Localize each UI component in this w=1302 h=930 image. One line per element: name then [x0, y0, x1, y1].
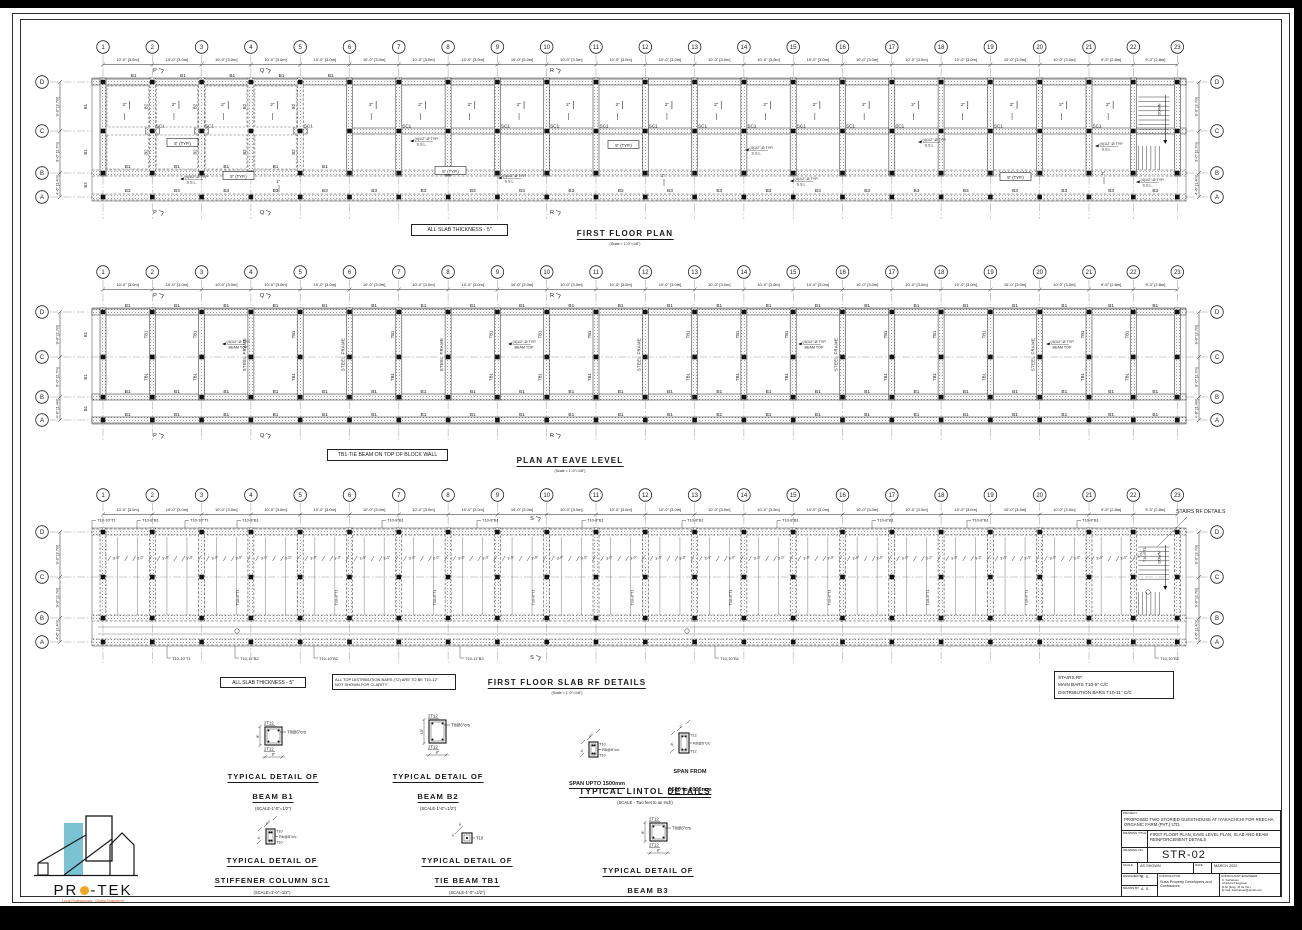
svg-text:TB1: TB1 [193, 372, 198, 380]
svg-text:B3: B3 [1152, 188, 1158, 194]
svg-text:Q: Q [260, 210, 265, 216]
svg-text:TB1: TB1 [1124, 330, 1129, 338]
svg-text:R: R [550, 210, 554, 216]
svg-text:10'-0" [3.0m]: 10'-0" [3.0m] [462, 282, 484, 287]
svg-text:23: 23 [1174, 270, 1181, 276]
svg-text:TB1: TB1 [981, 372, 986, 380]
svg-text:10'-0" [3.0m]: 10'-0" [3.0m] [314, 507, 336, 512]
svg-text:B3: B3 [618, 188, 624, 194]
titleblock-number-row: DRAWING NO. STR-02 [1122, 848, 1280, 863]
svg-text:6": 6" [580, 748, 586, 754]
svg-text:4'-6" [1.4m]: 4'-6" [1.4m] [55, 175, 60, 195]
svg-text:D: D [40, 310, 45, 316]
svg-text:T10-8"T1: T10-8"T1 [827, 589, 832, 605]
logo-wordmark: PR -TEK [34, 882, 152, 899]
plan-first-floor: 123456789101112131415161718192021222310'… [36, 41, 1224, 219]
svg-text:B3: B3 [371, 188, 377, 194]
svg-text:T12: T12 [690, 733, 697, 738]
svg-text:TB1: TB1 [488, 372, 493, 380]
logo-house [110, 833, 134, 875]
svg-text:10'-0" [3.0m]: 10'-0" [3.0m] [1053, 57, 1075, 62]
engineer-email: E-mail: ksutharsan@gmail.com [1220, 889, 1280, 893]
svg-text:9'-5" [2.8m]: 9'-5" [2.8m] [1101, 282, 1121, 287]
svg-text:9": 9" [670, 741, 676, 747]
svg-text:3'-0": 3'-0" [260, 555, 268, 561]
svg-text:B1: B1 [470, 389, 476, 395]
drawing-title-label: DRAWING TITLE [1122, 831, 1148, 847]
drawn-by-value: A. S. [1139, 886, 1151, 897]
svg-text:T10-8"B1: T10-8"B1 [587, 518, 605, 523]
svg-text:T10-11"B2: T10-11"B2 [465, 656, 484, 661]
detail-beam-b1-title: TYPICAL DETAIL OF BEAM B1 (SCALE-1'-0"=1… [228, 766, 319, 811]
svg-text:(4)1/2"-Ø TYP.: (4)1/2"-Ø TYP. [185, 175, 209, 179]
svg-text:S.S.L.: S.S.L. [797, 183, 807, 187]
svg-text:10'-0" [3.0m]: 10'-0" [3.0m] [609, 507, 631, 512]
svg-text:10'-0" [3.0m]: 10'-0" [3.0m] [955, 507, 977, 512]
plan-eave-level: 123456789101112131415161718192021222310'… [36, 266, 1224, 442]
svg-text:8": 8" [641, 830, 645, 834]
svg-text:13: 13 [691, 270, 698, 276]
svg-text:TB1: TB1 [1124, 372, 1129, 380]
svg-text:(4)1/2"-Ø TYP.: (4)1/2"-Ø TYP. [1051, 340, 1075, 344]
svg-text:T10-8"T1: T10-8"T1 [1024, 589, 1029, 605]
plan1-scale: (Scale = 1'-0"=1/8") [609, 242, 640, 246]
svg-text:B2: B2 [193, 149, 198, 155]
svg-text:B1: B1 [83, 149, 88, 155]
lintol-title: TYPICAL LINTOL DETAILS [579, 786, 711, 798]
svg-text:T10-8"B1: T10-8"B1 [972, 518, 990, 523]
svg-text:B1: B1 [174, 389, 180, 395]
svg-text:B1: B1 [519, 303, 525, 309]
svg-text:2": 2" [911, 102, 916, 107]
svg-text:TB1: TB1 [390, 372, 395, 380]
svg-text:10'-0" [3.0m]: 10'-0" [3.0m] [757, 282, 779, 287]
svg-text:22: 22 [1130, 270, 1137, 276]
svg-text:B1: B1 [716, 412, 722, 418]
svg-text:5" (TYP.): 5" (TYP.) [442, 169, 459, 174]
svg-text:9'-0" [2.7m]: 9'-0" [2.7m] [1194, 588, 1199, 608]
svg-text:C: C [1215, 355, 1220, 361]
svg-text:10'-0" [3.0m]: 10'-0" [3.0m] [1004, 507, 1026, 512]
svg-text:9'-5" [2.8m]: 9'-5" [2.8m] [1101, 57, 1121, 62]
svg-text:9'-0" [2.7m]: 9'-0" [2.7m] [55, 97, 60, 117]
svg-text:10'-0" [3.0m]: 10'-0" [3.0m] [708, 57, 730, 62]
svg-text:8": 8" [436, 751, 440, 755]
svg-text:2T12: 2T12 [428, 714, 438, 719]
svg-text:10'-0" [3.0m]: 10'-0" [3.0m] [215, 282, 237, 287]
svg-text:2T12: 2T12 [649, 843, 659, 848]
note-tie-beam: TB1-TIE BEAM ON TOP OF BLOCK WALL [327, 449, 448, 461]
svg-text:TB1: TB1 [193, 330, 198, 338]
svg-text:TB1: TB1 [291, 330, 296, 338]
svg-text:9'-0" [2.7m]: 9'-0" [2.7m] [55, 325, 60, 345]
svg-text:B: B [1215, 395, 1219, 401]
svg-text:BEAM TOP: BEAM TOP [229, 346, 248, 350]
svg-text:2": 2" [517, 102, 522, 107]
svg-text:10'-0" [3.0m]: 10'-0" [3.0m] [856, 57, 878, 62]
svg-text:R: R [550, 433, 554, 439]
svg-text:16: 16 [839, 493, 846, 499]
svg-text:SC1: SC1 [402, 124, 411, 129]
svg-text:SC1: SC1 [501, 124, 510, 129]
drawing-title-value: FIRST FLOOR PLAN, EAVE LEVEL PLAN, SLAB … [1148, 831, 1280, 847]
svg-text:17: 17 [888, 493, 895, 499]
svg-text:2": 2" [221, 102, 226, 107]
svg-text:B1: B1 [328, 73, 334, 79]
svg-text:S.S.L.: S.S.L. [752, 152, 762, 156]
svg-text:SC1: SC1 [895, 124, 904, 129]
svg-text:TB1: TB1 [932, 372, 937, 380]
svg-text:B1: B1 [421, 303, 427, 309]
plan2-title: PLAN AT EAVE LEVEL [517, 456, 624, 467]
svg-text:T12: T12 [690, 749, 697, 754]
svg-text:T10-8"B1: T10-8"B1 [877, 518, 895, 523]
svg-text:10'-0" [3.0m]: 10'-0" [3.0m] [856, 282, 878, 287]
svg-text:1": 1" [1101, 171, 1105, 176]
svg-text:TB1: TB1 [932, 330, 937, 338]
designed-by-label: DESIGNED BY [1122, 874, 1139, 885]
svg-text:10'-0" [3.0m]: 10'-0" [3.0m] [264, 507, 286, 512]
svg-text:10'-0" [3.0m]: 10'-0" [3.0m] [659, 507, 681, 512]
svg-text:TB1: TB1 [784, 372, 789, 380]
svg-text:10'-0" [3.0m]: 10'-0" [3.0m] [905, 57, 927, 62]
svg-text:3'-0": 3'-0" [310, 555, 318, 561]
detail-b2-line2: BEAM B2 [417, 792, 458, 803]
stairs-rf-line1: STAIRS RF: [1058, 674, 1170, 681]
drawing-no-value: STR-02 [1148, 848, 1206, 862]
svg-text:3'-0": 3'-0" [951, 555, 959, 561]
svg-text:SC1: SC1 [698, 124, 707, 129]
svg-text:3'-0": 3'-0" [211, 555, 219, 561]
detail-b1-line1: TYPICAL DETAIL OF [228, 772, 319, 783]
svg-text:B1: B1 [618, 412, 624, 418]
svg-text:T10: T10 [276, 829, 284, 834]
detail-beam-b3-title: TYPICAL DETAIL OF BEAM B3 [603, 860, 694, 898]
svg-text:D: D [1215, 530, 1220, 536]
lintol-right-span1: SPAN FROM [673, 769, 706, 775]
svg-text:3'-0": 3'-0" [852, 555, 860, 561]
svg-text:T10-8"T1: T10-8"T1 [334, 589, 339, 605]
logo-small-block [38, 863, 48, 875]
svg-text:B3: B3 [83, 182, 88, 188]
svg-text:T10-8"B1: T10-8"B1 [242, 518, 260, 523]
svg-text:2": 2" [566, 102, 571, 107]
svg-text:B1: B1 [83, 331, 88, 337]
svg-text:R6@5"c/c: R6@5"c/c [279, 834, 296, 839]
svg-text:10'-0" [3.0m]: 10'-0" [3.0m] [1004, 57, 1026, 62]
svg-text:T10-10"T1: T10-10"T1 [97, 518, 117, 523]
detail-sc1-title: TYPICAL DETAIL OF STIFFENER COLUMN SC1 (… [215, 850, 330, 895]
svg-text:T10-8"T1: T10-8"T1 [925, 589, 930, 605]
svg-text:B1: B1 [322, 164, 328, 170]
svg-text:2": 2" [270, 102, 275, 107]
svg-text:T10-8"T1: T10-8"T1 [235, 589, 240, 605]
svg-text:T10-8"B1: T10-8"B1 [387, 518, 405, 523]
titleblock-scale-row: SCALE AS SHOWN DATE MARCH 2022 [1122, 863, 1280, 874]
svg-text:STEEL FRAME: STEEL FRAME [341, 338, 346, 371]
svg-text:19: 19 [987, 45, 994, 51]
svg-text:18: 18 [938, 45, 945, 51]
svg-text:B3: B3 [174, 188, 180, 194]
svg-text:B1: B1 [667, 303, 673, 309]
svg-text:15: 15 [790, 270, 797, 276]
svg-text:TB1: TB1 [488, 330, 493, 338]
svg-text:B3: B3 [864, 188, 870, 194]
svg-text:(4)1/2"-Ø TYP.: (4)1/2"-Ø TYP. [415, 137, 439, 141]
svg-text:STEEL FRAME: STEEL FRAME [1031, 338, 1036, 371]
svg-text:10'-0" [3.0m]: 10'-0" [3.0m] [412, 57, 434, 62]
protek-logo-graphic [34, 811, 152, 877]
svg-text:12: 12 [642, 270, 649, 276]
svg-text:3'-0": 3'-0" [408, 555, 416, 561]
plan3-scale: (Scale = 1'-0"=1/8") [551, 691, 582, 695]
svg-text:23: 23 [1174, 45, 1181, 51]
svg-text:10'-0" [3.0m]: 10'-0" [3.0m] [215, 507, 237, 512]
svg-text:B1: B1 [223, 389, 229, 395]
svg-text:B1: B1 [716, 389, 722, 395]
svg-text:2": 2" [961, 102, 966, 107]
svg-text:10'-0" [3.0m]: 10'-0" [3.0m] [511, 282, 533, 287]
svg-text:D: D [1215, 310, 1220, 316]
svg-text:B: B [40, 616, 44, 622]
svg-text:TB1: TB1 [883, 330, 888, 338]
svg-text:B1: B1 [864, 389, 870, 395]
svg-text:B3: B3 [1108, 188, 1114, 194]
svg-text:B3: B3 [815, 188, 821, 194]
note-distribution-bars-line2: NOT SHOWN FOR CLARITY [335, 682, 453, 687]
svg-text:TB1: TB1 [143, 372, 148, 380]
svg-text:3'-0": 3'-0" [1049, 555, 1057, 561]
svg-text:9'-0" [2.7m]: 9'-0" [2.7m] [55, 545, 60, 565]
title-block: PROJECT: PROPOSED TWO STORIED GUESTHOUSE… [1121, 810, 1281, 897]
svg-text:B3: B3 [914, 188, 920, 194]
svg-text:B1: B1 [864, 412, 870, 418]
svg-text:2T12: 2T12 [264, 721, 274, 726]
svg-text:B1: B1 [279, 73, 285, 79]
svg-text:20: 20 [1036, 270, 1043, 276]
svg-text:2": 2" [122, 102, 127, 107]
svg-text:TB1: TB1 [1080, 372, 1085, 380]
svg-text:TB1: TB1 [686, 330, 691, 338]
svg-text:18: 18 [938, 493, 945, 499]
svg-text:9'-0" [2.7m]: 9'-0" [2.7m] [1194, 97, 1199, 117]
svg-text:1": 1" [661, 173, 665, 178]
svg-text:SC1: SC1 [994, 124, 1003, 129]
svg-text:10'-0" [3.0m]: 10'-0" [3.0m] [659, 282, 681, 287]
svg-text:T10: T10 [476, 836, 484, 841]
svg-text:4½": 4½" [588, 731, 596, 739]
svg-text:R6@5"c/c: R6@5"c/c [693, 740, 710, 745]
svg-text:B3: B3 [568, 188, 574, 194]
svg-text:TB1: TB1 [686, 372, 691, 380]
svg-text:10'-0" [3.0m]: 10'-0" [3.0m] [560, 282, 582, 287]
svg-text:9'-5" [2.8m]: 9'-5" [2.8m] [1101, 507, 1121, 512]
svg-text:10'-0" [3.0m]: 10'-0" [3.0m] [314, 57, 336, 62]
svg-text:10'-0" [3.0m]: 10'-0" [3.0m] [215, 57, 237, 62]
svg-text:10'-0" [3.0m]: 10'-0" [3.0m] [609, 57, 631, 62]
logo-text-post: -TEK [90, 882, 132, 899]
svg-text:10": 10" [420, 728, 424, 734]
protek-logo: PR -TEK Local Professionals · Global Exp… [34, 811, 152, 903]
svg-text:(4)1/2"-Ø TYP.: (4)1/2"-Ø TYP. [503, 174, 527, 178]
svg-text:TB1: TB1 [390, 330, 395, 338]
svg-text:10'-0" [3.0m]: 10'-0" [3.0m] [1053, 282, 1075, 287]
svg-text:B1: B1 [125, 303, 131, 309]
svg-text:B1: B1 [223, 412, 229, 418]
svg-text:15: 15 [790, 45, 797, 51]
svg-text:TB1: TB1 [735, 372, 740, 380]
svg-text:B3: B3 [273, 188, 279, 194]
svg-text:B1: B1 [421, 389, 427, 395]
svg-text:B1: B1 [174, 303, 180, 309]
svg-text:(4)1/2"-Ø TYP.: (4)1/2"-Ø TYP. [923, 138, 947, 142]
svg-text:B1: B1 [273, 164, 279, 170]
svg-text:(4)1/2"-Ø TYP.: (4)1/2"-Ø TYP. [1100, 142, 1124, 146]
svg-text:1": 1" [276, 179, 280, 184]
svg-text:3'-0": 3'-0" [655, 555, 663, 561]
svg-text:B1: B1 [421, 412, 427, 418]
svg-text:10'-0" [3.0m]: 10'-0" [3.0m] [708, 282, 730, 287]
svg-text:P: P [153, 293, 157, 299]
svg-text:21: 21 [1086, 493, 1093, 499]
svg-text:T8@6"crs: T8@6"crs [451, 723, 470, 728]
detail-b3-line2: BEAM B3 [627, 886, 668, 897]
detail-sc1-scale: (SCALE=1'-0"=1/2") [215, 890, 330, 895]
svg-text:2": 2" [714, 102, 719, 107]
svg-text:16: 16 [839, 270, 846, 276]
svg-text:A: A [40, 195, 44, 201]
svg-text:10'-0" [3.0m]: 10'-0" [3.0m] [757, 57, 779, 62]
svg-text:B1: B1 [223, 303, 229, 309]
svg-text:15: 15 [790, 493, 797, 499]
svg-text:C: C [1215, 575, 1220, 581]
stairs-rf-line2: MAIN BARS T10-5" C/C [1058, 681, 1170, 688]
svg-text:10'-0" [3.0m]: 10'-0" [3.0m] [757, 507, 779, 512]
svg-text:(4)1/2"-Ø TYP.: (4)1/2"-Ø TYP. [803, 340, 827, 344]
svg-text:D: D [40, 530, 45, 536]
detail-sc1-line2: STIFFENER COLUMN SC1 [215, 876, 330, 887]
svg-text:C: C [40, 355, 45, 361]
svg-text:3'-0": 3'-0" [753, 555, 761, 561]
svg-text:P: P [153, 433, 157, 439]
svg-text:TB1: TB1 [735, 330, 740, 338]
svg-text:11: 11 [593, 270, 600, 276]
svg-text:S: S [530, 655, 534, 661]
svg-text:3'-0": 3'-0" [458, 555, 466, 561]
svg-text:T10-8"B1: T10-8"B1 [782, 518, 800, 523]
note-slab-thickness-plan1: ALL SLAB THICKNESS - 5" [411, 224, 508, 236]
svg-text:SC1: SC1 [649, 124, 658, 129]
svg-text:S.S.L.: S.S.L. [1102, 148, 1112, 152]
svg-text:S.S.L.: S.S.L. [1143, 184, 1153, 188]
svg-text:TB1: TB1 [143, 330, 148, 338]
svg-text:(4)1/2"-Ø TYP.: (4)1/2"-Ø TYP. [513, 340, 537, 344]
svg-text:B1: B1 [1061, 303, 1067, 309]
svg-text:10'-0" [3.0m]: 10'-0" [3.0m] [955, 282, 977, 287]
svg-text:B3: B3 [519, 188, 525, 194]
svg-text:B2: B2 [143, 149, 148, 155]
svg-text:11: 11 [593, 45, 600, 51]
svg-text:23: 23 [1174, 493, 1181, 499]
svg-text:B1: B1 [371, 389, 377, 395]
svg-text:B1: B1 [766, 303, 772, 309]
svg-text:B1: B1 [568, 303, 574, 309]
svg-text:B1: B1 [125, 389, 131, 395]
svg-text:2": 2" [862, 102, 867, 107]
svg-text:10'-0" [3.0m]: 10'-0" [3.0m] [807, 57, 829, 62]
svg-text:B3: B3 [125, 188, 131, 194]
svg-text:B3: B3 [667, 188, 673, 194]
svg-text:SC1: SC1 [550, 124, 559, 129]
svg-text:B1: B1 [963, 412, 969, 418]
svg-text:10'-0" [3.0m]: 10'-0" [3.0m] [116, 507, 138, 512]
svg-text:T10: T10 [599, 742, 607, 747]
svg-text:B: B [1215, 171, 1219, 177]
svg-text:5" (TYP.): 5" (TYP.) [230, 174, 247, 179]
svg-text:C: C [1215, 129, 1220, 135]
note-distribution-bars: ALL TOP DISTRIBUTION BARS (T2) ARE TO BE… [332, 674, 456, 690]
svg-text:8": 8" [657, 849, 661, 853]
svg-text:10'-0" [3.0m]: 10'-0" [3.0m] [1004, 282, 1026, 287]
svg-text:10'-0" [3.0m]: 10'-0" [3.0m] [264, 282, 286, 287]
note-distribution-bars-line1: ALL TOP DISTRIBUTION BARS (T2) ARE TO BE… [335, 677, 453, 682]
detail-b1-scale: (SCALE-1'-0"=1/2") [228, 806, 319, 811]
svg-text:B2: B2 [291, 103, 296, 109]
svg-text:B1: B1 [815, 389, 821, 395]
lintol-scale: (SCALE - Two feet to an Inch) [617, 800, 673, 805]
svg-text:22: 22 [1130, 45, 1137, 51]
svg-text:B1: B1 [322, 412, 328, 418]
svg-text:2": 2" [369, 102, 374, 107]
svg-text:A: A [40, 418, 44, 424]
svg-text:S.S.L.: S.S.L. [505, 180, 515, 184]
drawing-sheet: 123456789101112131415161718192021222310'… [0, 0, 1302, 930]
svg-text:BEAM TOP: BEAM TOP [515, 346, 534, 350]
svg-text:B1: B1 [83, 405, 88, 411]
svg-text:9'-0" [2.7m]: 9'-0" [2.7m] [1194, 325, 1199, 345]
svg-text:B1: B1 [131, 73, 137, 79]
svg-text:5" (TYP.): 5" (TYP.) [1007, 175, 1024, 180]
svg-text:10'-0" [3.0m]: 10'-0" [3.0m] [116, 57, 138, 62]
svg-text:22: 22 [1130, 493, 1137, 499]
svg-text:10'-0" [3.0m]: 10'-0" [3.0m] [363, 507, 385, 512]
svg-text:10'-0" [3.0m]: 10'-0" [3.0m] [659, 57, 681, 62]
svg-text:10'-0" [3.0m]: 10'-0" [3.0m] [609, 282, 631, 287]
svg-text:B1: B1 [1061, 412, 1067, 418]
date-value: MARCH 2022 [1212, 863, 1280, 873]
svg-text:T10-8"T1: T10-8"T1 [531, 589, 536, 605]
svg-text:R: R [550, 293, 554, 299]
svg-text:T10-10"B2: T10-10"B2 [319, 656, 339, 661]
detail-b2-line1: TYPICAL DETAIL OF [393, 772, 484, 783]
svg-text:10'-0" [3.0m]: 10'-0" [3.0m] [166, 507, 188, 512]
svg-text:TB1: TB1 [291, 372, 296, 380]
svg-text:TB1: TB1 [587, 372, 592, 380]
detail-beam-b2-title: TYPICAL DETAIL OF BEAM B2 (SCALE-1'-0"=1… [393, 766, 484, 811]
svg-text:9'-0" [2.7m]: 9'-0" [2.7m] [55, 367, 60, 387]
logo-dot-icon [80, 886, 89, 895]
svg-text:S.S.L.: S.S.L. [187, 181, 197, 185]
svg-text:B1: B1 [371, 303, 377, 309]
logo-tagline: Local Professionals · Global Experience [34, 899, 152, 903]
project-value: PROPOSED TWO STORIED GUESTHOUSE AT IYAKA… [1122, 816, 1280, 828]
svg-text:SC1: SC1 [600, 124, 609, 129]
svg-text:17: 17 [888, 270, 895, 276]
svg-text:B1: B1 [273, 303, 279, 309]
svg-text:12: 12 [642, 45, 649, 51]
svg-text:SC1: SC1 [304, 124, 313, 129]
svg-text:2T12: 2T12 [649, 817, 659, 822]
